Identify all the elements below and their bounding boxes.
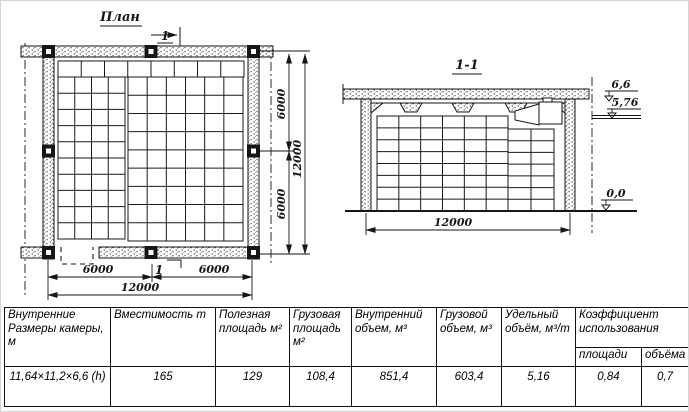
- section-air-cooler: [515, 98, 562, 125]
- col-header-dimensions: Внутренние Размеры камеры, м: [5, 308, 111, 367]
- col-header-cargo-volume: Грузовой объем, м³: [437, 308, 502, 367]
- cell-cargo-area: 108,4: [290, 367, 352, 407]
- plan-door-dashed: [61, 247, 93, 264]
- col-header-cargo-area: Грузовая площадь м²: [290, 308, 352, 367]
- pallet-grids: [58, 61, 554, 241]
- cell-internal-volume: 851,4: [352, 367, 437, 407]
- section-wall-left: [361, 99, 371, 211]
- col-header-specific-volume: Удельный объём, м³/m: [502, 308, 576, 367]
- plan-title: План: [99, 10, 140, 25]
- subcol-header-area: площади: [576, 348, 642, 367]
- col-header-internal-volume: Внутренний объем, м³: [352, 308, 437, 367]
- chamber-spec-table: Внутренние Размеры камеры, м Вместимость…: [4, 307, 689, 407]
- section-dim-width: 12000: [434, 216, 473, 229]
- plan-wall-bottom: [99, 247, 259, 258]
- plan-view: План 1 1 6000 6000 12000: [21, 10, 310, 300]
- section-title: 1-1: [455, 58, 479, 73]
- plan-cut-flag-bottom: [167, 260, 181, 268]
- cell-util-area: 0,84: [576, 367, 642, 407]
- plan-dim-right-lower: 6000: [275, 188, 288, 219]
- cell-util-volume: 0,7: [642, 367, 689, 407]
- plan-dim-right-total: 12000: [291, 140, 304, 179]
- cell-useful-area: 129: [216, 367, 290, 407]
- table-header-row: Внутренние Размеры камеры, м Вместимость…: [5, 308, 689, 348]
- elevation-label-ceiling: 6,6: [611, 78, 630, 91]
- plan-cut-mark-top: 1: [161, 29, 169, 43]
- elevation-label-beam: 5,76: [612, 96, 639, 109]
- plan-dim-bottom-left: 6000: [83, 263, 114, 276]
- section-elevation-beam: 5,76: [592, 96, 641, 119]
- document-page: План 1 1 6000 6000 12000: [0, 0, 689, 412]
- plan-dim-right-upper: 6000: [275, 88, 288, 119]
- plan-dim-bottom-total: 12000: [121, 281, 160, 294]
- cell-dimensions: 11,64×11,2×6,6 (h): [5, 367, 111, 407]
- technical-drawing: План 1 1 6000 6000 12000: [1, 1, 689, 305]
- plan-dim-bottom-right: 6000: [199, 263, 230, 276]
- col-header-useful-area: Полезная площадь м²: [216, 308, 290, 367]
- section-wall-right: [565, 99, 575, 211]
- section-view: 1-1: [343, 58, 641, 235]
- cell-cargo-volume: 603,4: [437, 367, 502, 407]
- col-header-utilization: Коэффициент использования: [576, 308, 689, 348]
- plan-wall-bottom-stub: [21, 247, 43, 258]
- cell-specific-volume: 5,16: [502, 367, 576, 407]
- elevation-label-floor: 0,0: [606, 187, 625, 200]
- section-elevation-floor: 0,0: [601, 187, 633, 210]
- subcol-header-volume: объёма: [642, 348, 689, 367]
- col-header-capacity: Вместимость m: [111, 308, 216, 367]
- table-data-row: 11,64×11,2×6,6 (h) 165 129 108,4 851,4 6…: [5, 367, 689, 407]
- cell-capacity: 165: [111, 367, 216, 407]
- plan-cut-mark-bottom: 1: [155, 263, 163, 277]
